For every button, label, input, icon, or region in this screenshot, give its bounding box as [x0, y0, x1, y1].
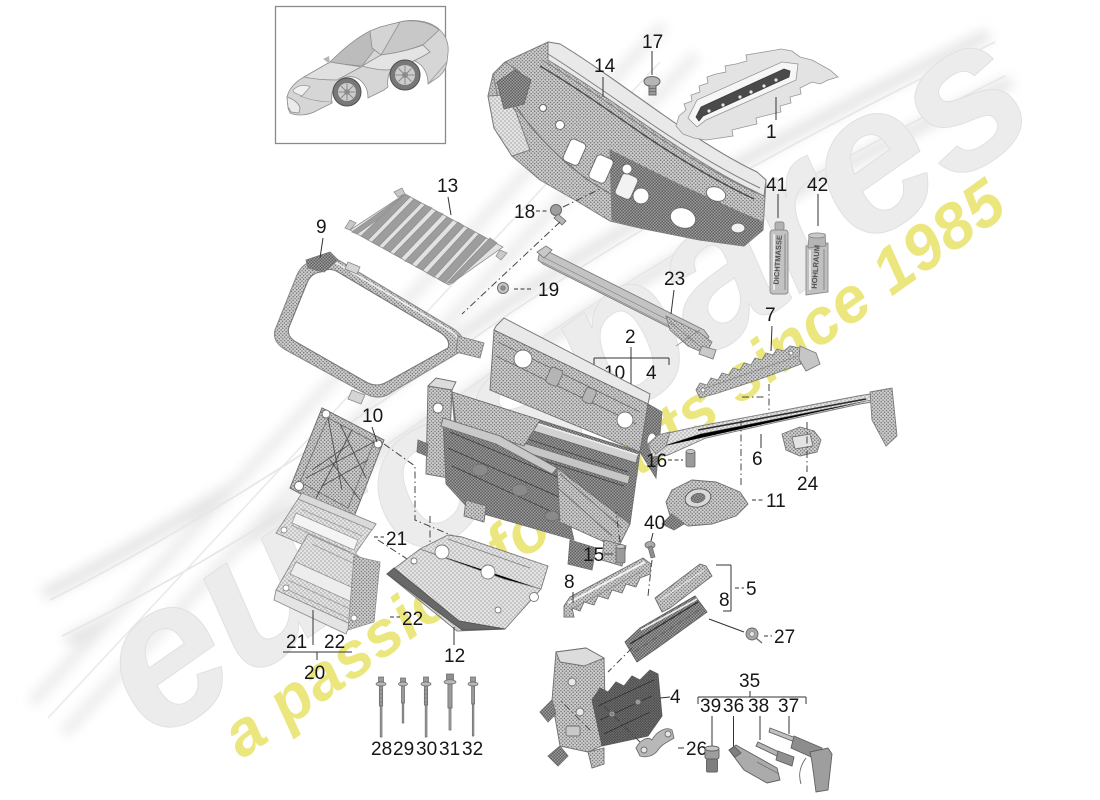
svg-text:4: 4 [646, 363, 657, 384]
svg-text:42: 42 [807, 175, 828, 196]
svg-text:8: 8 [719, 590, 730, 611]
svg-text:23: 23 [664, 269, 685, 290]
svg-text:13: 13 [437, 176, 458, 197]
svg-text:9: 9 [316, 217, 327, 238]
svg-text:27: 27 [774, 627, 795, 648]
svg-text:40: 40 [644, 513, 665, 534]
svg-text:41: 41 [766, 175, 787, 196]
svg-text:11: 11 [766, 491, 786, 512]
svg-text:21: 21 [286, 632, 307, 653]
svg-text:2: 2 [625, 327, 636, 348]
svg-text:15: 15 [583, 545, 604, 566]
svg-text:20: 20 [304, 663, 325, 684]
svg-text:38: 38 [748, 696, 769, 717]
svg-text:16: 16 [646, 451, 667, 472]
svg-text:32: 32 [462, 739, 483, 760]
svg-text:7: 7 [765, 305, 776, 326]
svg-text:1: 1 [766, 122, 777, 143]
svg-text:12: 12 [444, 646, 465, 667]
svg-text:36: 36 [723, 696, 744, 717]
svg-text:8: 8 [564, 572, 575, 593]
svg-text:4: 4 [670, 687, 681, 708]
svg-text:19: 19 [538, 280, 559, 301]
svg-text:6: 6 [752, 449, 763, 470]
svg-text:17: 17 [642, 32, 663, 53]
svg-text:5: 5 [746, 579, 757, 600]
svg-text:18: 18 [514, 202, 535, 223]
svg-text:31: 31 [439, 739, 460, 760]
svg-text:14: 14 [594, 56, 616, 77]
svg-text:37: 37 [778, 696, 799, 717]
svg-text:22: 22 [324, 632, 345, 653]
svg-text:10: 10 [362, 406, 383, 427]
svg-text:30: 30 [416, 739, 437, 760]
svg-text:39: 39 [700, 696, 721, 717]
svg-text:24: 24 [797, 474, 819, 495]
svg-text:29: 29 [393, 739, 414, 760]
svg-text:21: 21 [386, 529, 407, 550]
svg-text:28: 28 [371, 739, 392, 760]
svg-text:35: 35 [739, 671, 760, 692]
svg-text:26: 26 [686, 739, 707, 760]
svg-text:22: 22 [402, 609, 423, 630]
